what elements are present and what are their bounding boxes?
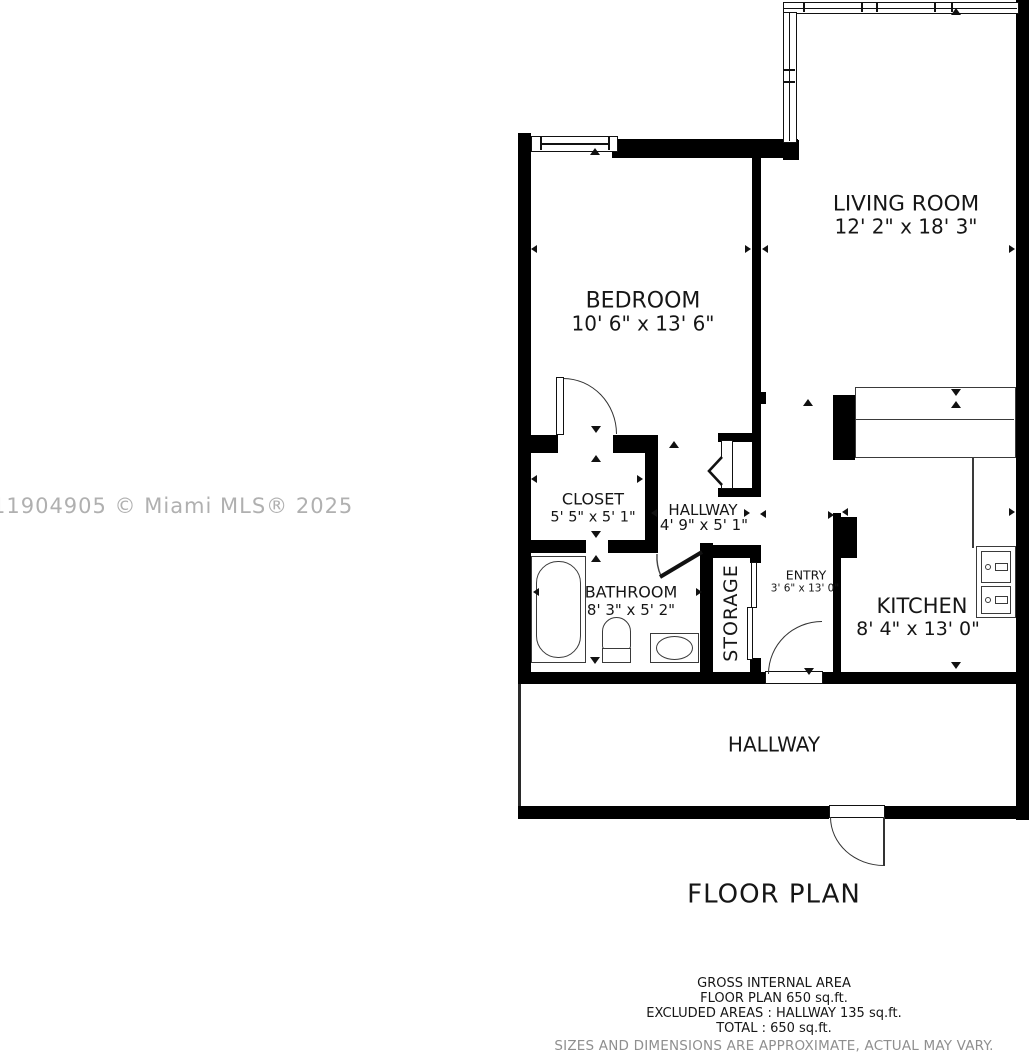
summary-line: FLOOR PLAN 650 sq.ft. xyxy=(518,991,1029,1006)
building-door-arc xyxy=(830,817,884,866)
marker-icon xyxy=(591,531,601,538)
marker-icon xyxy=(951,389,961,396)
sink-handle xyxy=(995,563,1008,571)
wall-segment xyxy=(700,543,713,684)
storage-slider-panel xyxy=(747,607,753,660)
marker-icon xyxy=(531,245,537,253)
hall-closet-door-panel xyxy=(721,440,733,489)
kitchen-counter xyxy=(855,387,1016,458)
building-door-leaf xyxy=(883,817,885,866)
vanity-sink-oval xyxy=(656,636,693,660)
marker-icon xyxy=(669,441,679,448)
wall-segment xyxy=(885,806,1029,819)
marker-icon xyxy=(762,245,768,253)
bedroom-dims: 10' 6" x 13' 6" xyxy=(571,314,714,335)
marker-icon xyxy=(531,475,537,483)
bedroom-label: BEDROOM xyxy=(586,289,701,312)
wall-segment xyxy=(518,133,531,684)
entry-dims: 3' 6" x 13' 0" xyxy=(771,583,839,594)
bathroom-door-leaf xyxy=(660,552,702,577)
marker-icon xyxy=(828,511,834,519)
wall-segment xyxy=(518,540,586,553)
kitchen-dims: 8' 4" x 13' 0" xyxy=(856,620,980,640)
toilet-bowl xyxy=(602,617,631,650)
bathroom-door-arc xyxy=(657,554,661,576)
bathroom-dims: 8' 3" x 5' 2" xyxy=(587,603,675,619)
bedroom-door-leaf xyxy=(556,377,564,435)
storage-label: STORAGE xyxy=(722,564,742,661)
wall-segment xyxy=(718,488,761,497)
wall-segment xyxy=(761,392,766,404)
sink-handle xyxy=(995,596,1008,604)
wall-segment xyxy=(839,517,857,558)
bathroom-label: BATHROOM xyxy=(585,585,678,602)
wall-segment xyxy=(1016,0,1029,820)
marker-icon xyxy=(745,245,751,253)
wall-segment xyxy=(823,672,1029,684)
faucet-icon xyxy=(985,564,991,570)
living-room-label: LIVING ROOM xyxy=(833,194,979,217)
wall-segment xyxy=(518,806,829,819)
summary-line: TOTAL : 650 sq.ft. xyxy=(518,1021,1029,1036)
closet-label: CLOSET xyxy=(562,492,624,509)
marker-icon xyxy=(951,8,961,15)
toilet-tank xyxy=(602,648,631,663)
wall-segment xyxy=(783,140,799,160)
exterior-hallway-label: HALLWAY xyxy=(728,735,820,756)
closet-dims: 5' 5" x 5' 1" xyxy=(550,510,635,525)
marker-icon xyxy=(591,455,601,462)
wall-segment xyxy=(833,395,855,460)
bedroom-door-arc xyxy=(563,378,617,434)
plan-title: FLOOR PLAN xyxy=(687,881,861,908)
storage-slider-panel xyxy=(751,562,757,608)
summary-line: GROSS INTERNAL AREA xyxy=(518,976,1029,991)
living-room-side-window xyxy=(783,12,797,143)
wall-segment xyxy=(752,158,761,453)
entry-door-arc xyxy=(768,621,822,674)
marker-icon xyxy=(951,662,961,669)
wall-segment xyxy=(608,540,658,553)
marker-icon xyxy=(803,399,813,406)
marker-icon xyxy=(804,668,814,675)
floor-plan-page: 11904905 © Miami MLS® 2025 xyxy=(0,0,1029,1054)
marker-icon xyxy=(1009,508,1015,516)
marker-icon xyxy=(760,510,766,518)
wall-segment xyxy=(750,545,761,563)
kitchen-label: KITCHEN xyxy=(877,595,968,617)
marker-icon xyxy=(651,509,657,517)
marker-icon xyxy=(591,555,601,562)
bathtub-basin xyxy=(536,561,581,658)
marker-icon xyxy=(1009,245,1015,253)
disclaimer-text: SIZES AND DIMENSIONS ARE APPROXIMATE, AC… xyxy=(518,1039,1029,1054)
summary-line: EXCLUDED AREAS : HALLWAY 135 sq.ft. xyxy=(518,1006,1029,1021)
marker-icon xyxy=(951,401,961,408)
door-swing-overlay xyxy=(0,0,1029,1054)
marker-icon xyxy=(590,148,600,155)
bedroom-window xyxy=(531,136,618,152)
wall-segment xyxy=(645,435,658,553)
marker-icon xyxy=(533,588,539,596)
area-summary: GROSS INTERNAL AREA FLOOR PLAN 650 sq.ft… xyxy=(518,976,1029,1054)
wall-segment xyxy=(518,435,558,453)
wall-segment xyxy=(612,139,798,158)
marker-icon xyxy=(590,657,600,664)
marker-icon xyxy=(591,426,601,433)
marker-icon xyxy=(637,475,643,483)
marker-icon xyxy=(842,508,848,516)
entry-label: ENTRY xyxy=(786,568,826,581)
faucet-icon xyxy=(985,597,991,603)
living-room-top-window xyxy=(783,2,1019,14)
kitchen-counter-edge xyxy=(972,458,974,548)
wall-segment xyxy=(518,684,521,806)
marker-icon xyxy=(696,588,702,596)
mls-watermark: 11904905 © Miami MLS® 2025 xyxy=(0,494,353,518)
wall-segment xyxy=(518,672,765,684)
hallway-dims: 4' 9" x 5' 1" xyxy=(660,518,748,534)
living-room-dims: 12' 2" x 18' 3" xyxy=(834,217,977,238)
